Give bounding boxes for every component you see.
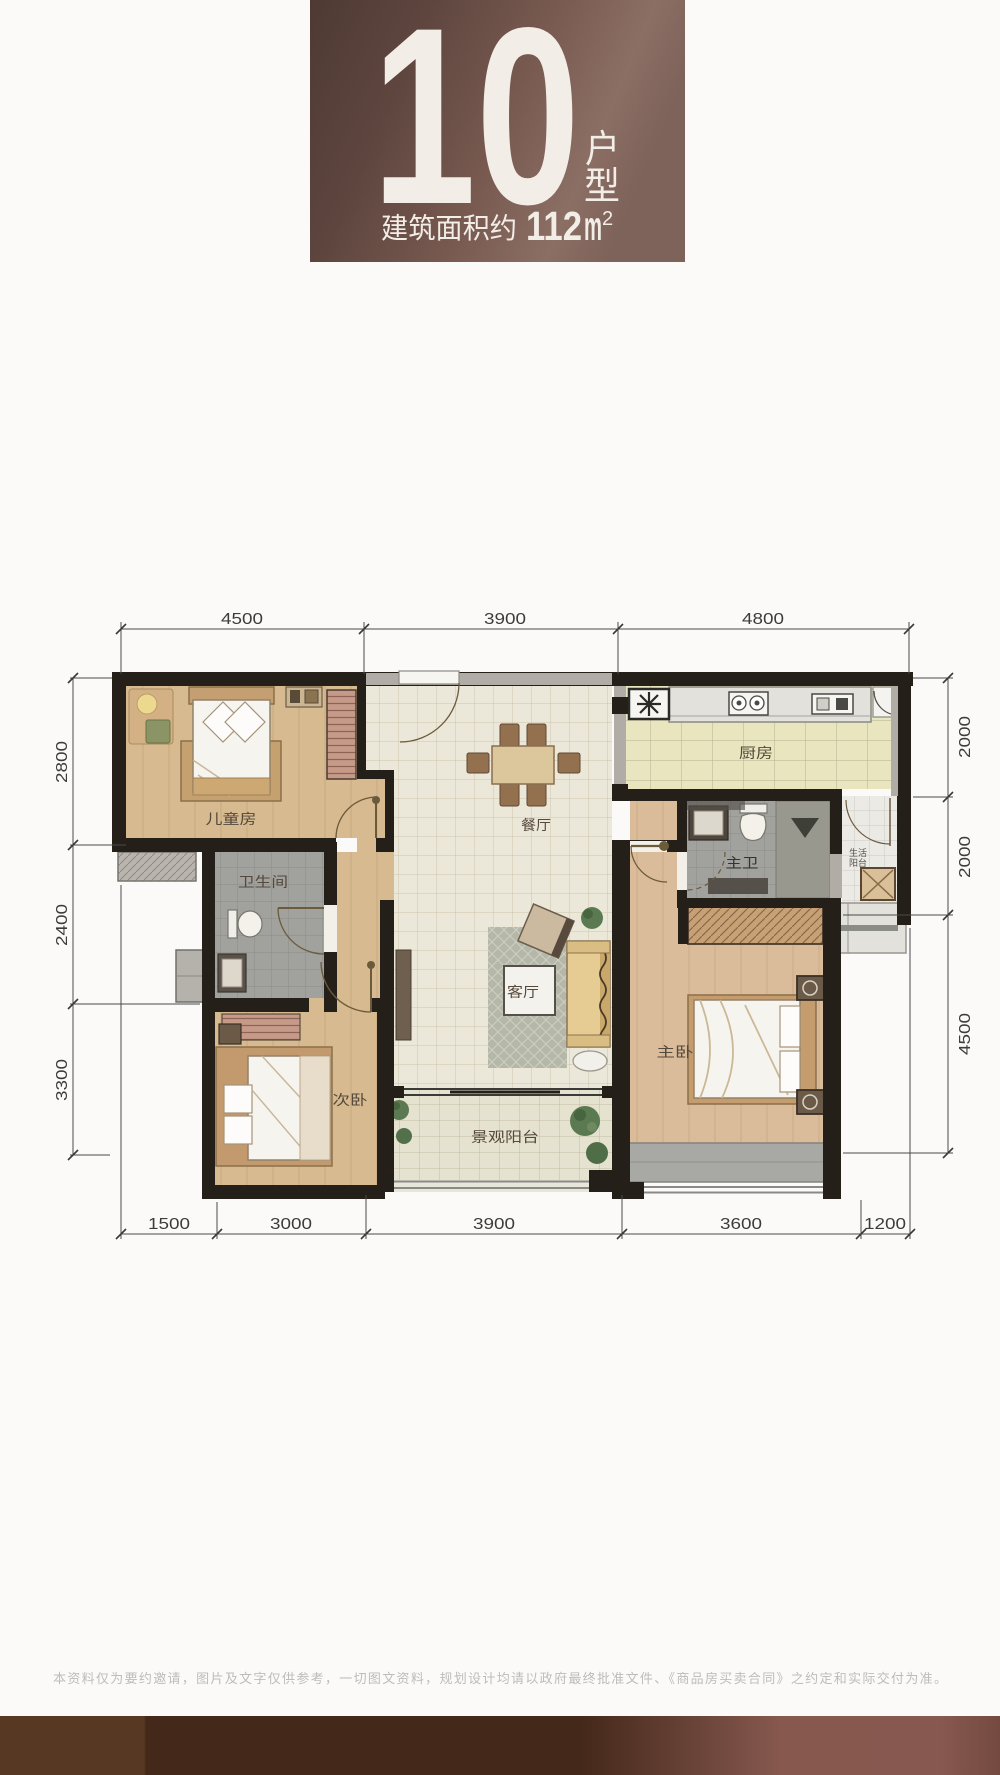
svg-text:m: m <box>584 203 602 249</box>
svg-text:3900: 3900 <box>484 611 526 628</box>
svg-text:1200: 1200 <box>864 1216 906 1233</box>
svg-text:主卧: 主卧 <box>657 1044 694 1060</box>
svg-text:阳台: 阳台 <box>849 857 867 868</box>
svg-text:2800: 2800 <box>54 741 71 783</box>
svg-text:2000: 2000 <box>957 716 974 758</box>
svg-text:3000: 3000 <box>270 1216 312 1233</box>
svg-text:2: 2 <box>602 208 613 230</box>
svg-text:主卫: 主卫 <box>726 855 759 871</box>
svg-text:次卧: 次卧 <box>333 1092 368 1108</box>
svg-text:2400: 2400 <box>54 904 71 946</box>
svg-text:餐厅: 餐厅 <box>521 817 551 833</box>
svg-text:景观阳台: 景观阳台 <box>471 1129 539 1145</box>
svg-text:厨房: 厨房 <box>739 745 773 761</box>
svg-text:儿童房: 儿童房 <box>206 811 257 827</box>
svg-text:4500: 4500 <box>957 1013 974 1055</box>
svg-text:户: 户 <box>585 129 620 171</box>
svg-text:3600: 3600 <box>720 1216 762 1233</box>
svg-text:生活: 生活 <box>849 847 867 858</box>
svg-text:4800: 4800 <box>742 611 784 628</box>
svg-text:型: 型 <box>584 166 620 208</box>
svg-text:建筑面积约: 建筑面积约 <box>381 213 517 245</box>
svg-text:客厅: 客厅 <box>507 984 539 1000</box>
svg-text:3900: 3900 <box>473 1216 515 1233</box>
svg-text:4500: 4500 <box>221 611 263 628</box>
svg-text:卫生间: 卫生间 <box>238 874 288 890</box>
svg-text:1500: 1500 <box>148 1216 190 1233</box>
svg-text:2000: 2000 <box>957 836 974 878</box>
svg-text:112: 112 <box>526 203 582 249</box>
svg-text:3300: 3300 <box>54 1059 71 1101</box>
svg-text:本资料仅为要约邀请，图片及文字仅供参考，一切图文资料，规划设: 本资料仅为要约邀请，图片及文字仅供参考，一切图文资料，规划设计均请以政府最终批准… <box>53 1671 947 1686</box>
